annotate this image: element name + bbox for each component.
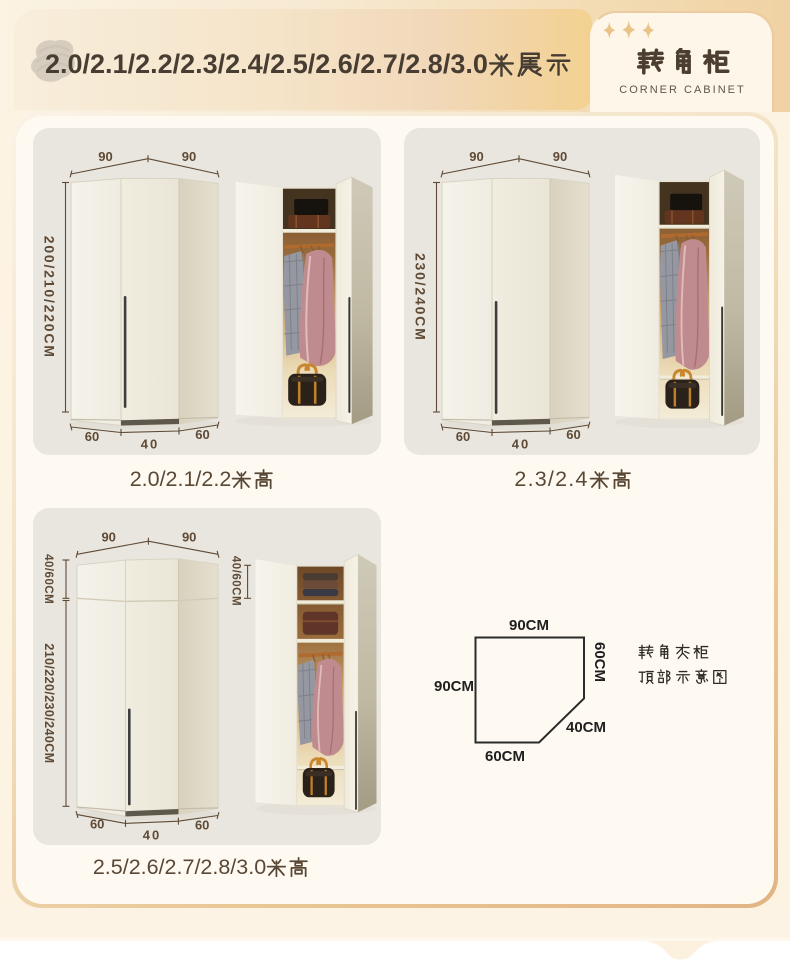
svg-text:60CM: 60CM bbox=[485, 748, 525, 765]
svg-text:90CM: 90CM bbox=[434, 678, 474, 695]
svg-text:60CM: 60CM bbox=[591, 642, 608, 682]
svg-text:90CM: 90CM bbox=[509, 617, 549, 634]
svg-text:40CM: 40CM bbox=[566, 719, 606, 736]
